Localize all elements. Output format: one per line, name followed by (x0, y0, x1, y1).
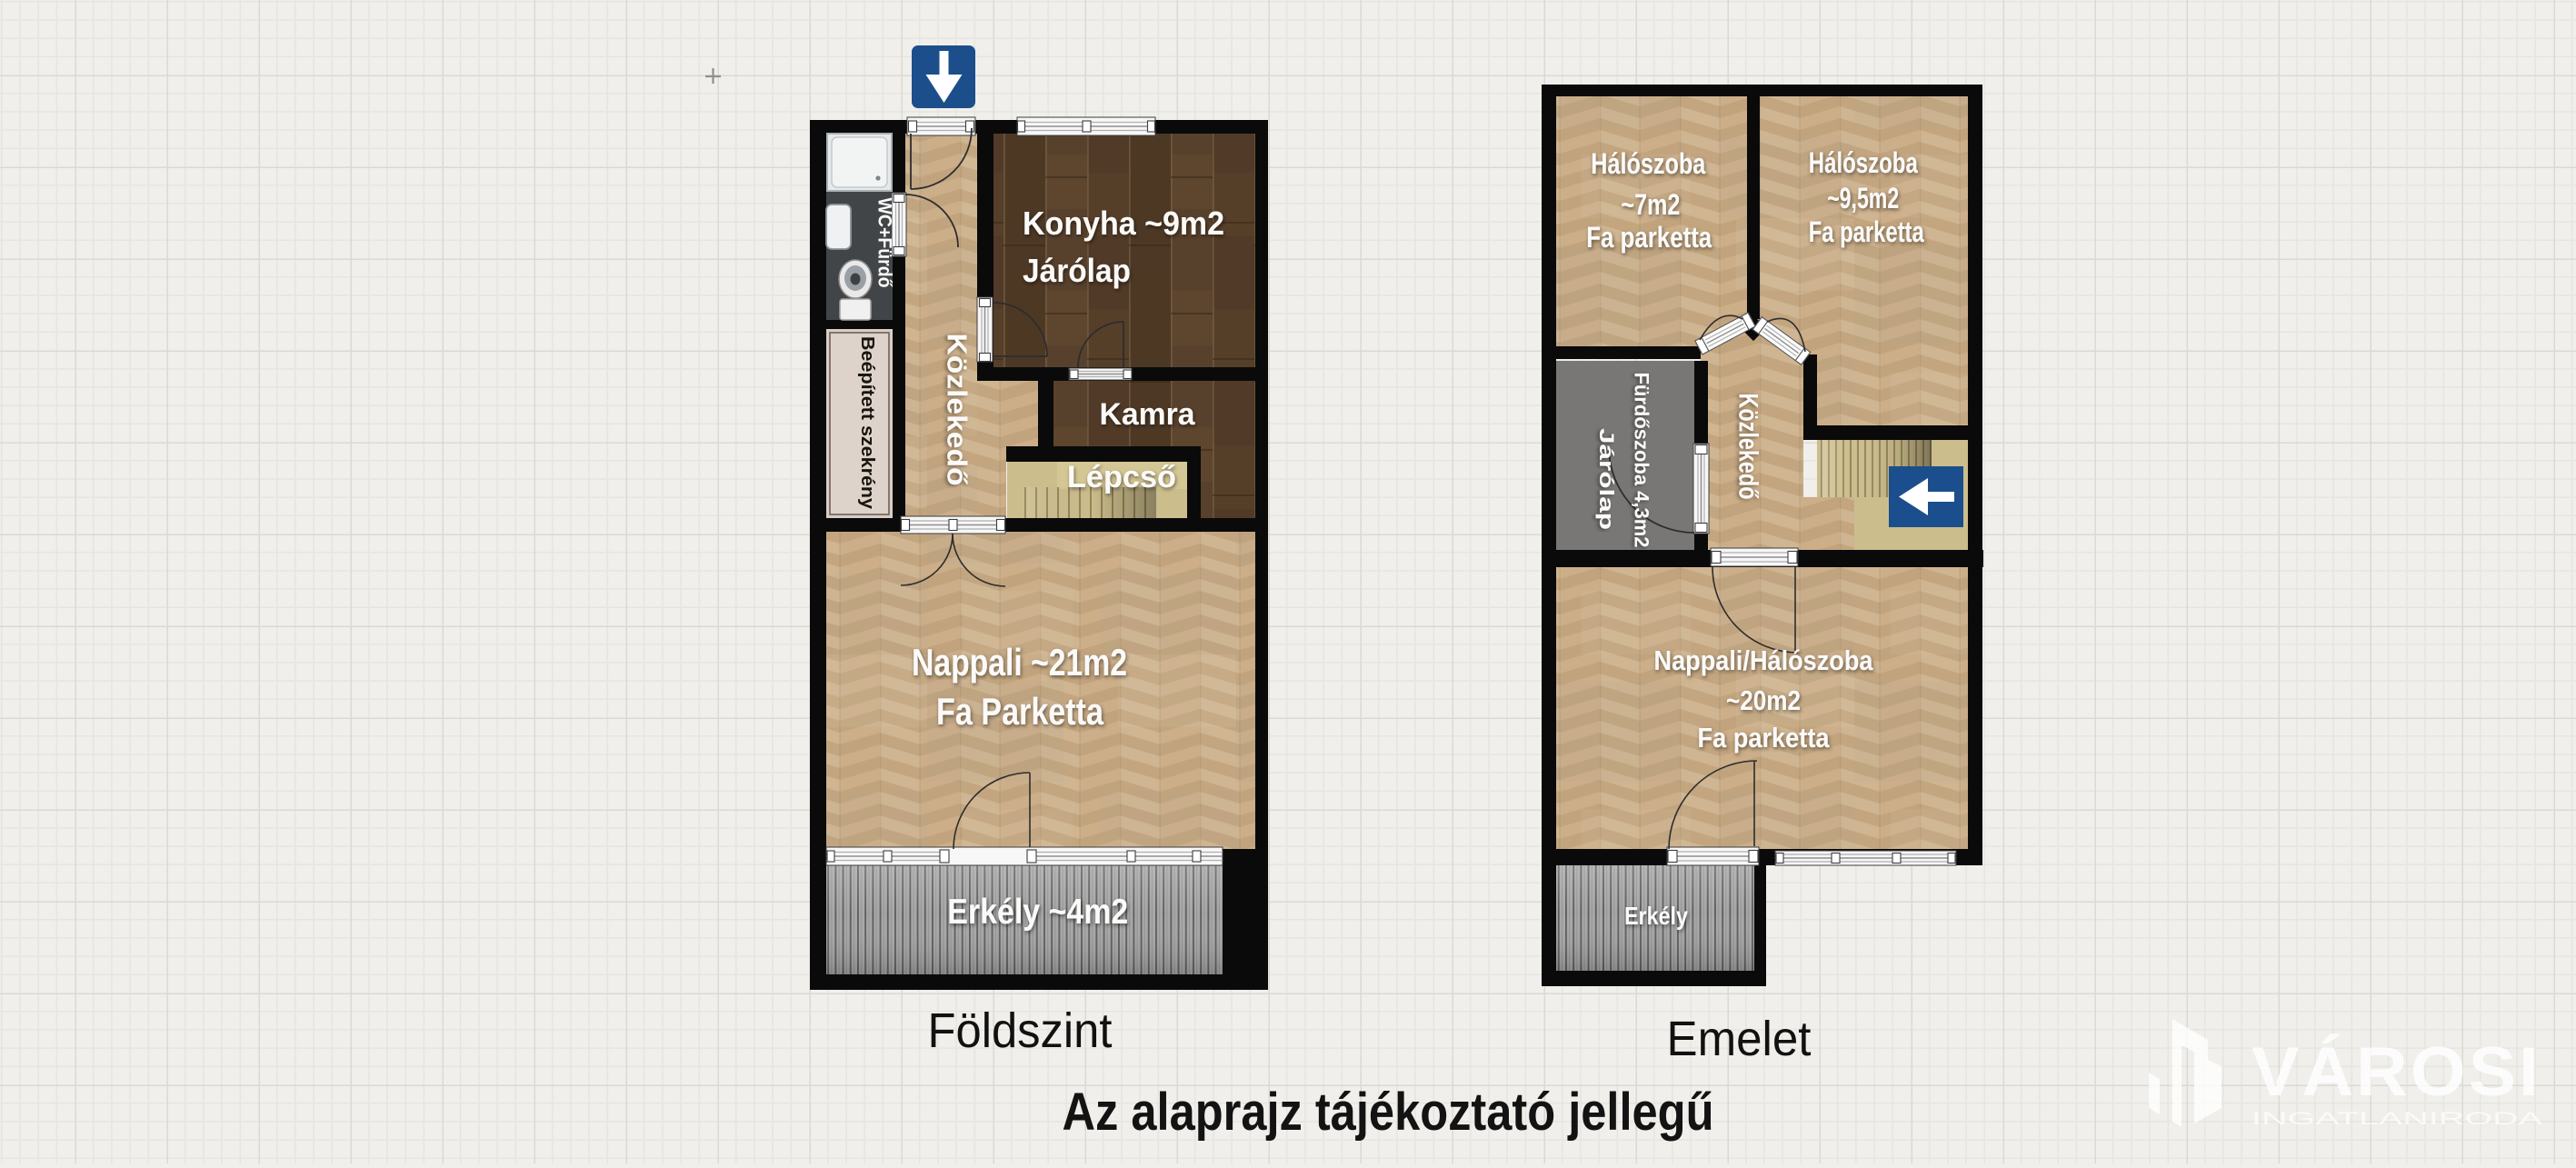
svg-text:Emelet: Emelet (1667, 1012, 1812, 1066)
svg-text:Erkély ~4m2: Erkély ~4m2 (947, 893, 1128, 932)
svg-text:WC+Fürdő: WC+Fürdő (874, 198, 895, 288)
svg-text:INGATLANIRODA: INGATLANIRODA (2252, 1110, 2543, 1129)
svg-text:Földszint: Földszint (928, 1003, 1113, 1058)
svg-text:Fa Parketta: Fa Parketta (936, 690, 1104, 733)
svg-text:Közlekedő: Közlekedő (942, 334, 973, 486)
svg-text:Nappali/Hálószoba: Nappali/Hálószoba (1654, 644, 1874, 676)
svg-text:Beépített szekrény: Beépített szekrény (857, 336, 877, 510)
svg-text:Fa parketta: Fa parketta (1586, 221, 1712, 254)
svg-text:Kamra: Kamra (1100, 397, 1196, 432)
svg-text:Járólap: Járólap (1023, 252, 1131, 289)
svg-text:VÁROSI: VÁROSI (2252, 1033, 2541, 1111)
svg-text:~9,5m2: ~9,5m2 (1827, 182, 1899, 215)
svg-text:Fa parketta: Fa parketta (1809, 215, 1924, 248)
svg-text:Fürdőszoba 4,3m2: Fürdőszoba 4,3m2 (1631, 373, 1653, 548)
svg-text:Közlekedő: Közlekedő (1733, 394, 1763, 500)
svg-text:Erkély: Erkély (1624, 902, 1688, 930)
svg-text:~20m2: ~20m2 (1726, 684, 1801, 716)
svg-text:~7m2: ~7m2 (1621, 188, 1680, 221)
svg-text:Hálószoba: Hálószoba (1809, 146, 1918, 179)
svg-text:Nappali ~21m2: Nappali ~21m2 (912, 641, 1127, 684)
svg-text:Fa parketta: Fa parketta (1698, 722, 1831, 754)
svg-text:Hálószoba: Hálószoba (1591, 147, 1705, 180)
svg-text:Lépcső: Lépcső (1067, 460, 1176, 494)
svg-text:Járólap: Járólap (1595, 428, 1618, 530)
svg-text:Az alaprajz tájékoztató jelleg: Az alaprajz tájékoztató jellegű (1063, 1083, 1714, 1142)
svg-text:Konyha ~9m2: Konyha ~9m2 (1023, 205, 1224, 242)
